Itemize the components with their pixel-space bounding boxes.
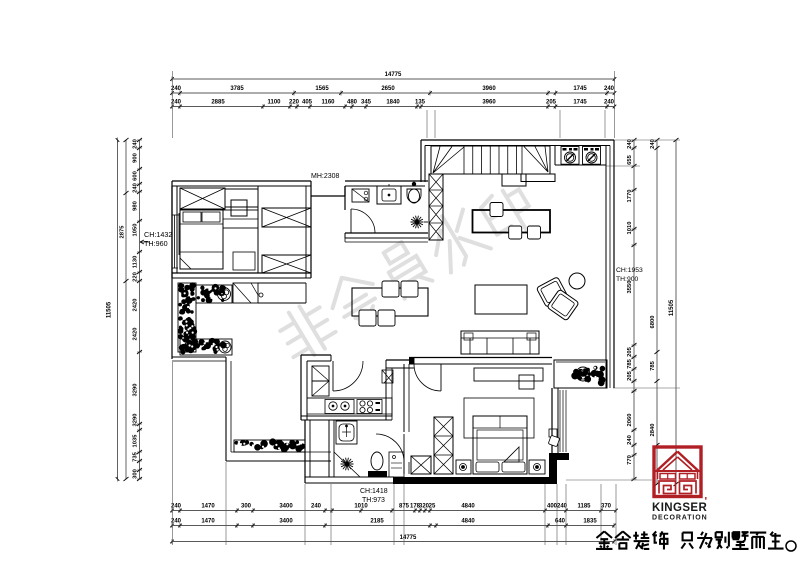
svg-text:2650: 2650 [381, 86, 395, 92]
svg-text:DECORATION: DECORATION [652, 515, 708, 522]
svg-text:640: 640 [555, 519, 566, 525]
svg-text:205: 205 [627, 370, 633, 380]
svg-text:240: 240 [604, 100, 615, 106]
svg-text:1050: 1050 [133, 224, 139, 237]
svg-text:770: 770 [627, 455, 633, 465]
svg-text:1185: 1185 [577, 504, 591, 510]
svg-text:MH:2308: MH:2308 [311, 173, 340, 180]
svg-text:300: 300 [133, 469, 139, 479]
svg-text:4840: 4840 [461, 504, 475, 510]
svg-text:2060: 2060 [627, 414, 633, 427]
svg-text:14775: 14775 [400, 535, 417, 541]
svg-text:875: 875 [399, 504, 410, 510]
svg-text:785: 785 [627, 358, 633, 368]
svg-text:240: 240 [650, 139, 656, 149]
svg-text:655: 655 [627, 154, 633, 164]
svg-text:370: 370 [601, 504, 612, 510]
svg-text:3290: 3290 [133, 384, 139, 397]
svg-text:205: 205 [627, 346, 633, 356]
svg-text:1470: 1470 [201, 519, 215, 525]
svg-text:11505: 11505 [107, 301, 113, 318]
svg-text:1100: 1100 [267, 100, 281, 106]
svg-text:600: 600 [133, 171, 139, 181]
svg-text:785: 785 [650, 360, 656, 370]
svg-text:2420: 2420 [133, 299, 139, 312]
svg-text:240: 240 [604, 86, 615, 92]
svg-text:240: 240 [133, 183, 139, 193]
svg-text:1745: 1745 [573, 100, 587, 106]
svg-text:480: 480 [347, 100, 358, 106]
svg-text:2840: 2840 [650, 424, 656, 437]
svg-text:2885: 2885 [211, 100, 225, 106]
svg-text:2185: 2185 [370, 519, 384, 525]
svg-text:TH:960: TH:960 [144, 239, 168, 248]
svg-text:1565: 1565 [315, 86, 329, 92]
svg-text:900: 900 [133, 153, 139, 163]
svg-text:': ' [705, 496, 708, 508]
svg-text:405: 405 [302, 100, 313, 106]
svg-text:2875: 2875 [120, 225, 126, 239]
svg-text:1745: 1745 [573, 86, 587, 92]
svg-text:3960: 3960 [482, 100, 496, 106]
svg-text:2420: 2420 [133, 328, 139, 341]
svg-text:240: 240 [133, 139, 139, 149]
svg-text:3290: 3290 [133, 414, 139, 427]
svg-text:1010: 1010 [354, 504, 368, 510]
svg-text:CH:1418: CH:1418 [360, 488, 388, 495]
svg-text:6800: 6800 [650, 316, 656, 329]
svg-text:25: 25 [429, 504, 436, 510]
svg-text:240: 240 [627, 139, 633, 149]
svg-text:TH:973: TH:973 [362, 497, 385, 504]
svg-text:3400: 3400 [279, 504, 293, 510]
svg-text:3400: 3400 [279, 519, 293, 525]
svg-text:CH:1432: CH:1432 [144, 230, 172, 239]
svg-text:KINGSER: KINGSER [652, 502, 707, 514]
svg-text:220: 220 [133, 272, 139, 282]
svg-text:3960: 3960 [482, 86, 496, 92]
svg-text:CH:1953: CH:1953 [616, 267, 643, 274]
svg-text:240: 240 [311, 504, 322, 510]
svg-text:220: 220 [289, 100, 300, 106]
svg-text:TH:900: TH:900 [616, 276, 639, 283]
svg-text:980: 980 [133, 201, 139, 211]
svg-text:1770: 1770 [627, 190, 633, 203]
svg-text:300: 300 [241, 504, 252, 510]
svg-text:135: 135 [415, 100, 426, 106]
svg-text:1035: 1035 [133, 434, 139, 448]
svg-text:1160: 1160 [321, 100, 335, 106]
svg-text:3785: 3785 [230, 86, 244, 92]
svg-text:735: 735 [133, 451, 139, 461]
svg-text:345: 345 [361, 100, 372, 106]
svg-text:1840: 1840 [386, 100, 400, 106]
svg-text:240: 240 [627, 435, 633, 445]
svg-text:4840: 4840 [461, 519, 475, 525]
svg-text:14775: 14775 [385, 72, 402, 78]
svg-text:1130: 1130 [133, 256, 139, 269]
svg-text:11505: 11505 [669, 299, 675, 316]
svg-text:205: 205 [546, 100, 557, 106]
svg-text:1470: 1470 [201, 504, 215, 510]
svg-text:1835: 1835 [583, 519, 597, 525]
svg-text:1010: 1010 [627, 222, 633, 235]
